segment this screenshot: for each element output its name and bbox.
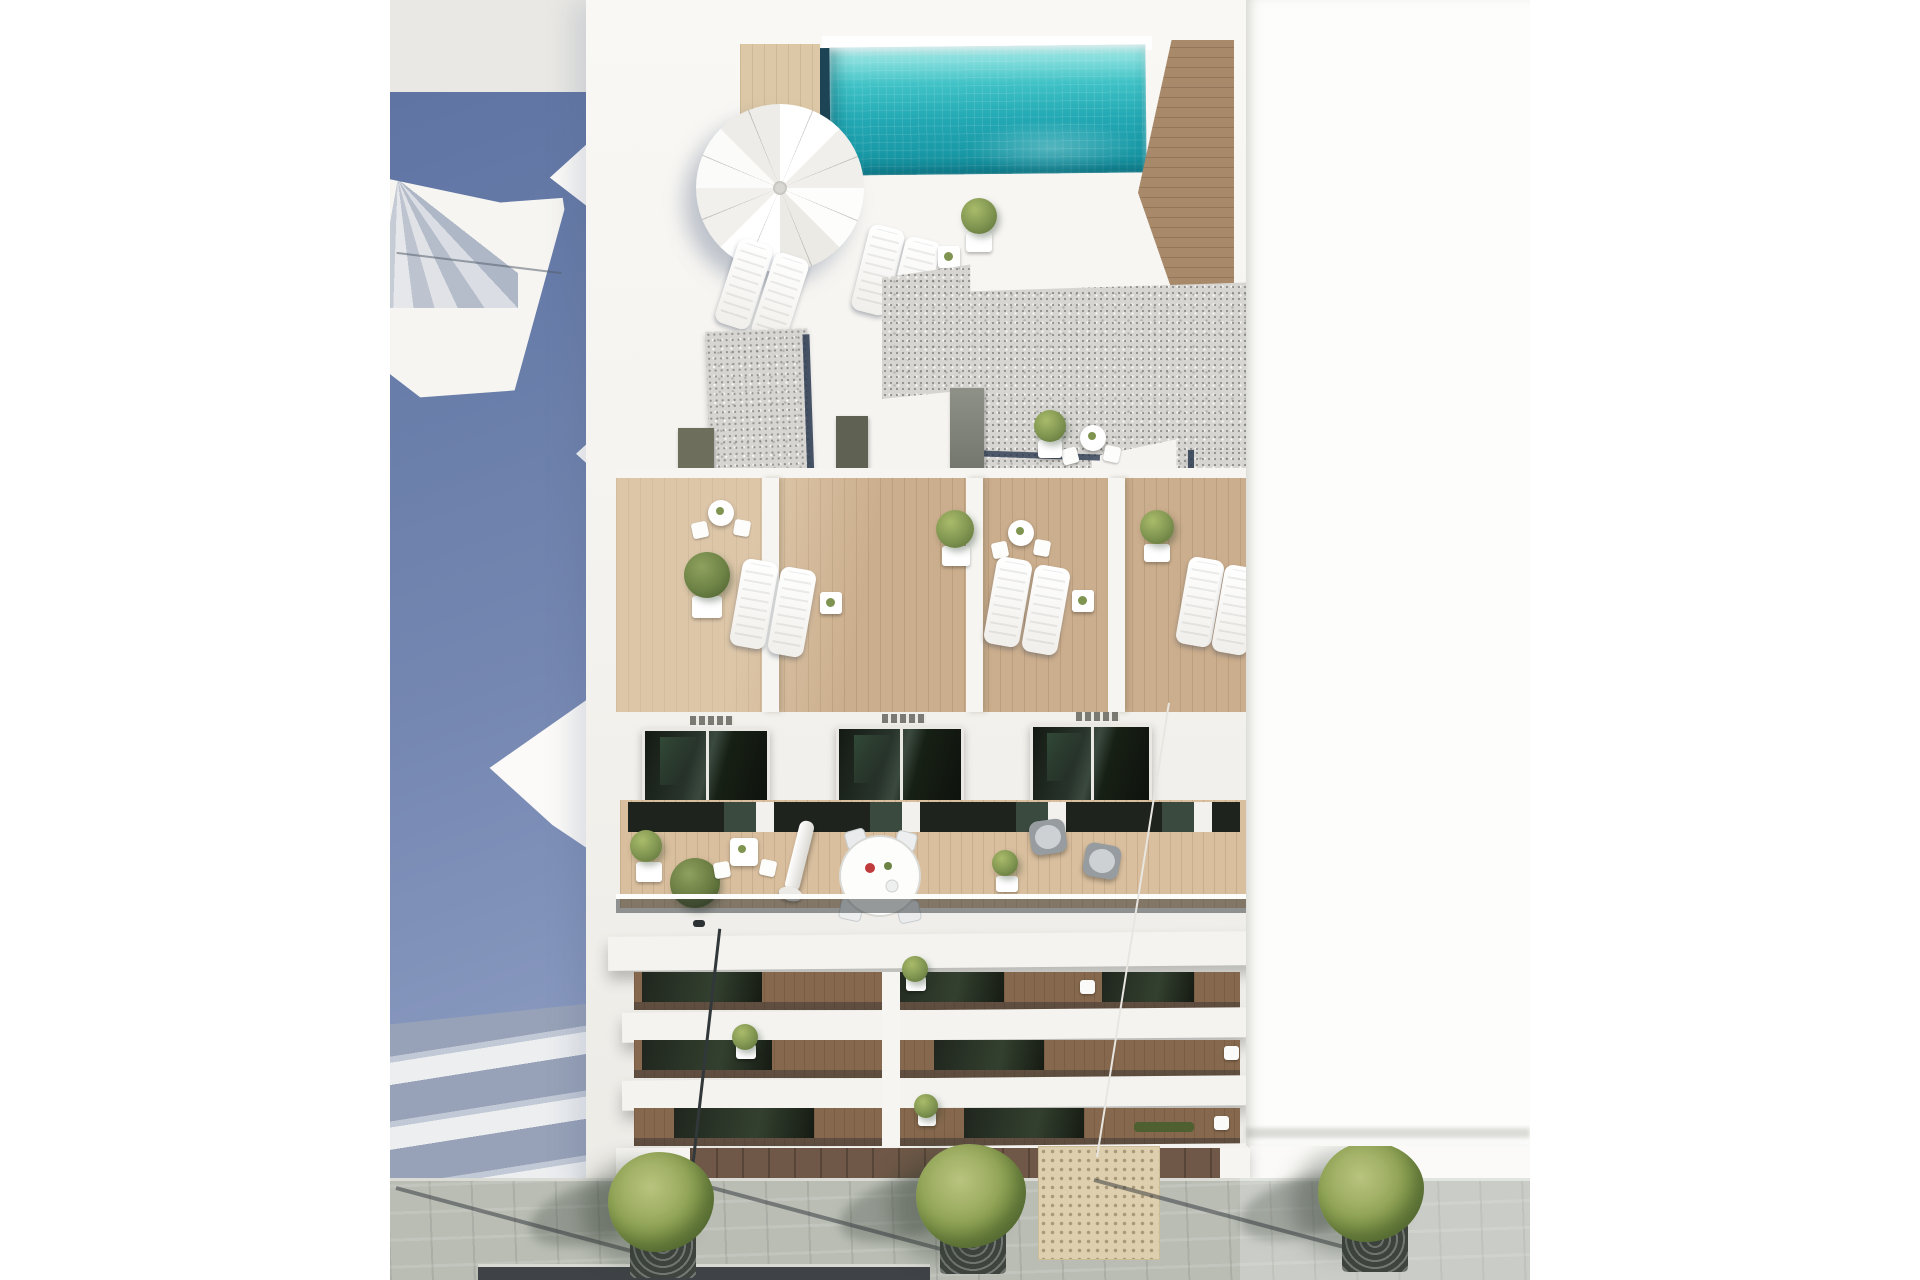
balcony-glass-door [964, 1108, 1084, 1138]
render-canvas [0, 0, 1920, 1280]
balcony-plant [902, 956, 928, 982]
terrace-bistro-chair [691, 521, 710, 540]
balcony-mini-chair [1214, 1116, 1229, 1130]
balcony-hedge-planter [1134, 1122, 1194, 1132]
balcony-plant-pot [636, 862, 662, 882]
parasol-cast-shadow [390, 168, 518, 308]
roof-bistro-table [1080, 425, 1106, 451]
terrace-potted-tree [1140, 510, 1174, 544]
balcony-band [634, 1040, 1240, 1078]
terrace-potted-tree [936, 510, 974, 548]
aerial-render-photo [390, 0, 1530, 1280]
balcony-mini-chair [1080, 980, 1095, 994]
terrace-divider-wall [1108, 478, 1125, 712]
roof-potted-plant [961, 198, 997, 234]
glass-balustrade [616, 898, 1252, 913]
swimming-pool [829, 44, 1146, 175]
terrace-potted-tree [684, 552, 730, 598]
balcony-chair [759, 859, 778, 878]
terrace-bistro-table [1008, 520, 1034, 546]
terrace-divider-wall [966, 478, 983, 712]
round-dining-set [818, 828, 942, 932]
asphalt-road [478, 1264, 930, 1280]
roof-potted-plant [1034, 410, 1066, 442]
vent-grille [690, 716, 734, 725]
vent-grille [882, 714, 926, 723]
terrace-side-table [820, 592, 842, 614]
roof-side-table [938, 246, 960, 268]
balcony-mini-chair [1224, 1046, 1239, 1060]
balcony-boxwood [630, 830, 662, 862]
balcony-plant [732, 1024, 758, 1050]
tactile-paving [1038, 1146, 1160, 1260]
wicker-armchair [1028, 818, 1068, 857]
terrace-bistro-table [708, 500, 734, 526]
terrace-bistro-chair [733, 519, 752, 538]
terrace-plant-pot [1144, 544, 1170, 562]
balcony-plant [914, 1094, 938, 1118]
balcony-band [634, 1108, 1240, 1146]
balcony-band [634, 972, 1240, 1010]
balcony-glass-door [884, 972, 1004, 1002]
vent-grille [1076, 712, 1120, 721]
right-building-base-shadow [1246, 1128, 1530, 1138]
balcony-glass-door [1102, 972, 1194, 1002]
balcony-slab [608, 931, 1256, 971]
right-neighbour-building [1246, 0, 1530, 1146]
sliding-glass-door [1030, 724, 1152, 810]
roof-bistro-chair [1103, 445, 1122, 464]
balcony-slab [622, 1007, 1248, 1042]
terrace-plant-pot [692, 596, 722, 618]
wicker-armchair [1081, 841, 1122, 881]
balcony-plant-pot [996, 876, 1018, 892]
lamp-post-head [693, 920, 705, 927]
roof-plant-pot [966, 232, 992, 252]
terrace-side-table [1072, 590, 1094, 612]
balcony-chair [713, 861, 732, 880]
roof-plant-pot [1038, 440, 1062, 458]
balcony-plant [992, 850, 1018, 876]
balcony-glass-door [642, 972, 762, 1002]
balcony-square-table [730, 838, 758, 866]
terrace-plant-pot [942, 546, 970, 566]
roof-parasol [696, 104, 864, 272]
top-left-neighbour-roof [390, 0, 598, 94]
balcony-glass-door [934, 1040, 1044, 1070]
terrace-bistro-chair [1033, 539, 1052, 558]
